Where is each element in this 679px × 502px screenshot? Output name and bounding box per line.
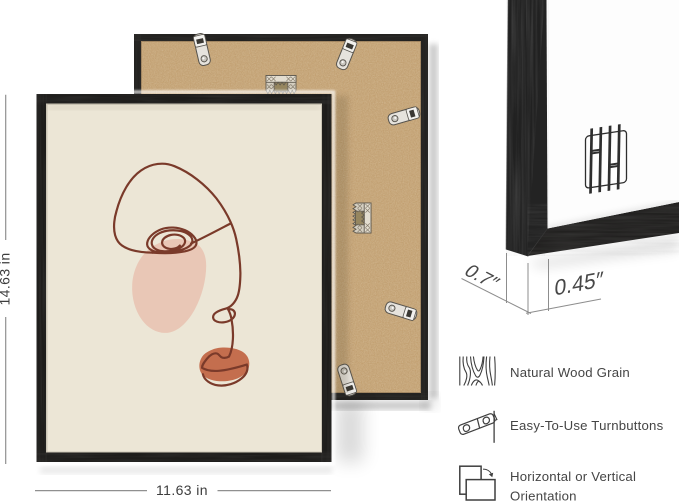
svg-text:Easy-To-Use Turnbuttons: Easy-To-Use Turnbuttons — [510, 418, 664, 433]
svg-text:Orientation: Orientation — [510, 488, 577, 502]
svg-text:Natural Wood Grain: Natural Wood Grain — [510, 365, 630, 380]
svg-text:0.45″: 0.45″ — [554, 266, 604, 300]
svg-text:0.7″: 0.7″ — [459, 262, 503, 293]
svg-text:14.63 in: 14.63 in — [0, 252, 13, 305]
svg-text:Horizontal or Vertical: Horizontal or Vertical — [510, 469, 636, 484]
svg-text:11.63 in: 11.63 in — [156, 482, 208, 498]
